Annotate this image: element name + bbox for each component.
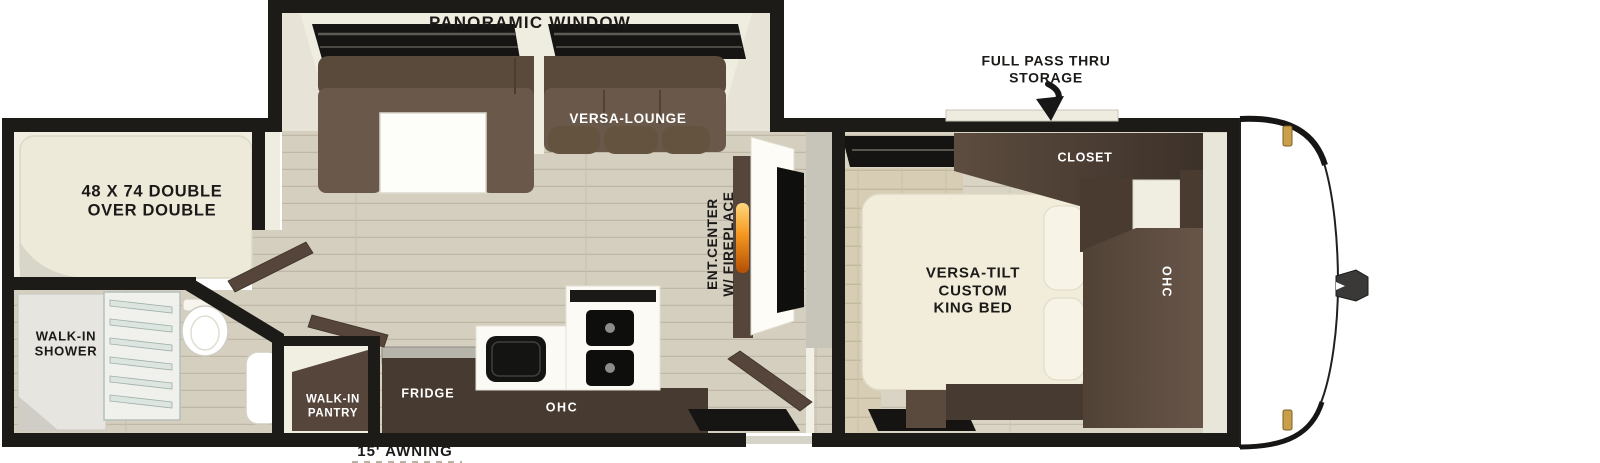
front-cap-body (1240, 119, 1338, 447)
bed-bench (946, 384, 1086, 420)
rv-floorplan: PANORAMIC WINDOW VERSA-LOUNGE FULL PASS … (0, 0, 1600, 463)
stove-backsplash (570, 290, 656, 302)
label-ohc-kitchen: OHC (546, 401, 579, 416)
divider-wall-face (806, 131, 832, 348)
label-awning: 15' AWNING (357, 443, 453, 461)
label-full-pass-thru-storage: FULL PASS THRU STORAGE (981, 52, 1110, 85)
bedroom-divider-wall (832, 118, 845, 433)
floorplan-art (0, 0, 1600, 463)
front-cap (1240, 119, 1368, 447)
pillow-1 (1044, 206, 1084, 290)
pantry-top-wall (272, 336, 380, 346)
bunk-wall-face (265, 131, 280, 230)
entry-mat (688, 409, 800, 431)
pantry-right-wall (368, 336, 380, 437)
lounge-cushion-1 (548, 126, 600, 154)
marker-light-top-icon (1283, 126, 1292, 146)
label-versa-lounge: VERSA-LOUNGE (569, 111, 686, 127)
label-panoramic-window: PANORAMIC WINDOW (429, 13, 631, 33)
fireplace-flame-icon (736, 203, 749, 273)
sofa-right-chaise (482, 88, 534, 193)
slideout-left-wall (268, 0, 282, 131)
label-fridge: FRIDGE (401, 387, 454, 402)
lounge-cushion-3 (662, 126, 710, 154)
toilet-icon (182, 306, 228, 356)
entry-threshold (746, 436, 812, 444)
sofa-gap (534, 56, 544, 154)
label-versa-tilt-king-bed: VERSA-TILT CUSTOM KING BED (926, 264, 1020, 317)
tv-icon (777, 167, 804, 313)
label-closet: CLOSET (1058, 151, 1113, 166)
bunk-right-wall (252, 118, 265, 230)
rear-wall (2, 118, 14, 447)
label-ent-center-fireplace: ENT.CENTER W/ FIREPLACE (705, 191, 737, 296)
pillow-2 (1044, 298, 1084, 380)
pantry-left-wall (272, 334, 284, 437)
front-wall-face (1203, 133, 1227, 433)
label-walk-in-shower: WALK-IN SHOWER (35, 329, 98, 360)
top-wall-left (2, 118, 282, 132)
marker-light-bottom-icon (1283, 410, 1292, 430)
slideout-top-wall (268, 0, 784, 13)
pass-thru-storage-hatch (946, 110, 1118, 121)
front-wall (1227, 118, 1240, 447)
lounge-cushion-2 (604, 126, 658, 154)
label-ohc-bedroom: OHC (1159, 266, 1174, 298)
bottom-wall-right (812, 433, 1240, 447)
label-walk-in-pantry: WALK-IN PANTRY (306, 393, 360, 420)
dinette-table (380, 113, 486, 193)
kitchen-lower-cabinet-ohc (456, 388, 708, 433)
door-jamb-face (806, 348, 814, 433)
bunk-bottom-wall (14, 277, 196, 290)
bed-step (906, 390, 946, 428)
ohc-wardrobe-cabinet (1083, 228, 1203, 428)
label-bunk-bed: 48 X 74 DOUBLE OVER DOUBLE (82, 183, 223, 222)
slideout-right-wall (770, 0, 784, 131)
